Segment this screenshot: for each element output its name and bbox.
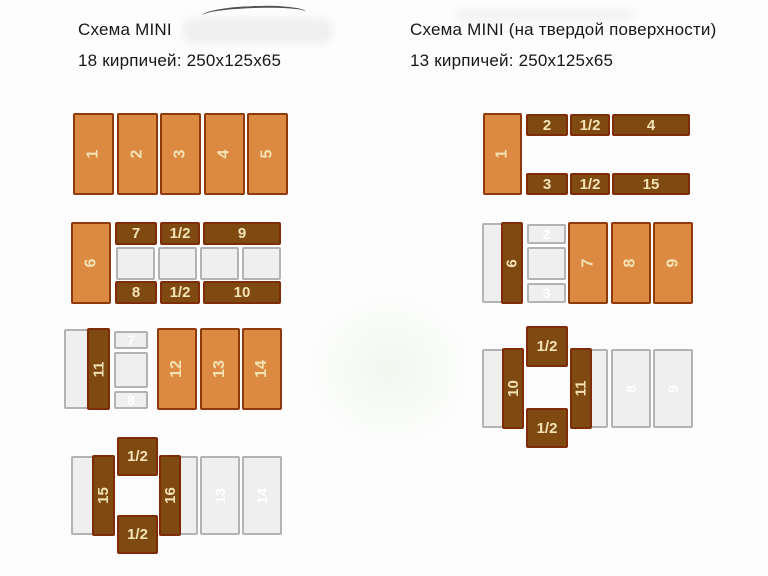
brick-label: 3 [543,176,551,193]
brick-label: 7 [579,259,597,268]
brick-10: 10 [203,281,281,304]
brick-label: 1/2 [170,284,191,301]
half-brick: 1/2 [117,515,158,554]
brick-11: 11 [570,348,592,429]
brick-label: 3 [543,285,551,301]
brick-9: 9 [653,222,693,304]
brick-7: 7 [568,222,608,304]
ghost-brick [200,247,239,280]
brick-label: 10 [234,284,251,301]
brick-1: 1 [483,113,522,195]
ghost-brick [527,247,566,280]
brick-3: 3 [160,113,201,195]
brick-8: 8 [611,222,651,304]
brick-label: 13 [212,488,228,504]
brick-label: 5 [259,150,277,159]
brick-label: 14 [254,488,270,504]
brick-15: 15 [612,173,690,195]
half-brick: 1/2 [570,173,610,195]
half-brick: 1/2 [526,326,568,367]
brick-label: 9 [664,259,682,268]
brick-8: 8 [115,281,157,304]
brick-label: 9 [665,385,681,393]
brick-16: 16 [159,455,181,536]
brick-label: 1/2 [580,176,601,193]
ghost-brick-2: 2 [527,224,566,244]
brick-label: 1/2 [170,225,191,242]
brick-label: 6 [82,259,100,268]
brick-label: 1/2 [537,420,558,437]
brick-label: 2 [128,150,146,159]
ghost-brick [242,247,281,280]
half-brick: 1/2 [117,437,158,476]
brick-label: 13 [210,360,228,378]
brick-5: 5 [247,113,288,195]
brick-label: 12 [168,360,186,378]
brick-label: 1 [85,150,103,159]
brick-label: 15 [95,487,112,504]
ghost-brick-3: 3 [527,283,566,303]
ghost-brick-8: 8 [114,391,148,409]
half-brick: 1/2 [570,114,610,136]
brick-label: 6 [504,259,521,267]
brick-label: 7 [127,332,135,348]
brick-label: 10 [505,380,522,397]
brick-label: 15 [643,176,660,193]
half-brick: 1/2 [526,408,568,448]
ghost-brick-13: 13 [200,456,240,535]
brick-10: 10 [502,348,524,429]
brick-12: 12 [157,328,197,410]
brick-label: 8 [127,392,135,408]
brick-1: 1 [73,113,114,195]
brick-label: 1/2 [127,526,148,543]
brick-label: 9 [238,225,246,242]
brick-2: 2 [117,113,158,195]
brick-6: 6 [501,222,523,304]
brick-label: 8 [132,284,140,301]
brick-laying-diagram: Схема MINI 18 кирпичей: 250x125x65 Схема… [0,0,768,576]
brick-label: 7 [132,225,140,242]
brick-4: 4 [204,113,245,195]
brick-2: 2 [526,114,568,136]
ghost-brick [114,352,148,388]
brick-15: 15 [92,455,115,536]
brick-label: 3 [172,150,190,159]
brick-13: 13 [200,328,240,410]
brick-9: 9 [203,222,281,245]
brick-label: 1 [494,150,512,159]
ghost-brick [158,247,197,280]
brick-label: 16 [162,487,179,504]
half-brick: 1/2 [160,222,200,245]
brick-label: 2 [543,117,551,134]
brick-label: 8 [622,385,638,393]
brick-4: 4 [612,114,690,136]
brick-11: 11 [87,328,110,410]
brick-label: 1/2 [580,117,601,134]
brick-label: 4 [215,150,233,159]
ghost-brick [116,247,155,280]
half-brick: 1/2 [160,281,200,304]
brick-6: 6 [71,222,111,304]
ghost-brick-14: 14 [242,456,282,535]
brick-label: 14 [253,360,271,378]
brick-7: 7 [115,222,157,245]
ghost-brick-8: 8 [611,349,651,428]
ghost-brick-9: 9 [653,349,693,428]
brick-label: 11 [90,361,107,377]
brick-14: 14 [242,328,282,410]
ghost-brick-7: 7 [114,331,148,349]
brick-3: 3 [526,173,568,195]
brick-label: 4 [647,117,655,134]
brick-label: 8 [622,259,640,268]
brick-label: 11 [572,381,589,397]
brick-label: 1/2 [127,448,148,465]
brick-label: 1/2 [537,338,558,355]
brick-label: 2 [543,226,551,242]
